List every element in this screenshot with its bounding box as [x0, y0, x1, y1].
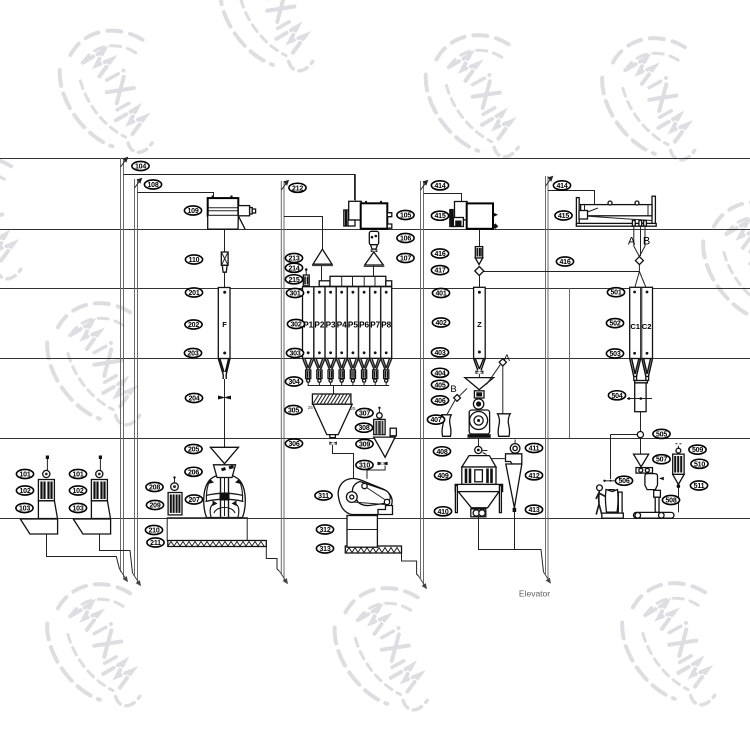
svg-text:301: 301	[289, 291, 300, 298]
svg-text:407: 407	[430, 417, 441, 424]
svg-text:501: 501	[610, 290, 621, 297]
svg-text:312: 312	[319, 527, 330, 534]
svg-text:108: 108	[147, 182, 158, 189]
svg-text:104: 104	[135, 164, 146, 171]
svg-text:209: 209	[149, 503, 160, 510]
svg-text:P4: P4	[337, 321, 347, 330]
svg-text:414: 414	[556, 183, 567, 190]
svg-text:107: 107	[400, 256, 411, 263]
svg-text:414: 414	[434, 183, 445, 190]
svg-text:P2: P2	[314, 321, 324, 330]
svg-text:302: 302	[290, 322, 301, 329]
svg-text:P1: P1	[303, 321, 313, 330]
svg-text:416: 416	[434, 251, 445, 258]
svg-text:103: 103	[19, 506, 30, 513]
svg-text:102: 102	[72, 488, 83, 495]
svg-text:213: 213	[288, 256, 299, 263]
svg-text:511: 511	[694, 483, 705, 490]
svg-text:307: 307	[359, 411, 370, 418]
svg-text:P5: P5	[348, 321, 358, 330]
svg-text:103: 103	[72, 506, 83, 513]
svg-text:406: 406	[434, 398, 445, 405]
svg-text:502: 502	[609, 321, 620, 328]
svg-text:214: 214	[288, 265, 299, 272]
svg-text:309: 309	[359, 442, 370, 449]
svg-text:304: 304	[288, 379, 299, 386]
svg-text:505: 505	[656, 431, 667, 438]
svg-text:210: 210	[148, 528, 159, 535]
svg-text:Elevator: Elevator	[519, 589, 550, 599]
svg-text:313: 313	[319, 546, 330, 553]
svg-text:C2: C2	[642, 322, 652, 331]
svg-text:101: 101	[19, 472, 30, 479]
svg-text:205: 205	[188, 447, 199, 454]
svg-text:409: 409	[437, 473, 448, 480]
svg-text:A: A	[504, 353, 511, 364]
svg-text:105: 105	[400, 213, 411, 220]
svg-text:P6: P6	[359, 321, 369, 330]
svg-text:408: 408	[436, 449, 447, 456]
svg-text:508: 508	[665, 498, 676, 505]
svg-text:P8: P8	[381, 321, 391, 330]
svg-text:401: 401	[435, 291, 446, 298]
svg-text:311: 311	[318, 493, 329, 500]
svg-text:208: 208	[149, 485, 160, 492]
svg-text:201: 201	[188, 290, 199, 297]
svg-text:25: 25	[308, 405, 314, 410]
svg-text:402: 402	[435, 320, 446, 327]
svg-text:A: A	[628, 236, 636, 248]
svg-text:413: 413	[528, 507, 539, 514]
svg-text:212: 212	[292, 185, 303, 192]
svg-text:211: 211	[150, 540, 161, 547]
svg-text:106: 106	[400, 236, 411, 243]
svg-text:415: 415	[558, 213, 569, 220]
svg-text:207: 207	[188, 497, 199, 504]
svg-text:506: 506	[618, 478, 629, 485]
svg-text:410: 410	[437, 509, 448, 516]
svg-text:109: 109	[187, 208, 198, 215]
svg-text:405: 405	[434, 382, 445, 389]
svg-text:308: 308	[358, 425, 369, 432]
svg-text:510: 510	[694, 461, 705, 468]
svg-text:206: 206	[188, 469, 199, 476]
svg-text:204: 204	[188, 396, 199, 403]
svg-text:305: 305	[288, 408, 299, 415]
svg-text:110: 110	[189, 257, 200, 264]
svg-text:416: 416	[559, 259, 570, 266]
svg-text:202: 202	[188, 322, 199, 329]
svg-text:303: 303	[289, 351, 300, 358]
svg-text:F: F	[222, 320, 227, 329]
svg-text:101: 101	[72, 472, 83, 479]
svg-text:P3: P3	[326, 321, 336, 330]
svg-text:417: 417	[434, 268, 445, 275]
svg-text:310: 310	[359, 463, 370, 470]
svg-text:P7: P7	[370, 321, 380, 330]
svg-text:404: 404	[434, 370, 445, 377]
svg-text:403: 403	[434, 350, 445, 357]
svg-text:102: 102	[19, 488, 30, 495]
svg-text:B: B	[643, 236, 650, 248]
svg-text:412: 412	[528, 473, 539, 480]
svg-text:306: 306	[288, 441, 299, 448]
svg-text:509: 509	[692, 447, 703, 454]
svg-text:25: 25	[351, 406, 357, 411]
svg-text:504: 504	[611, 393, 622, 400]
svg-text:215: 215	[288, 277, 299, 284]
svg-text:C1: C1	[630, 322, 640, 331]
svg-text:415: 415	[434, 213, 445, 220]
svg-text:503: 503	[609, 351, 620, 358]
svg-text:507: 507	[656, 457, 667, 464]
svg-text:Z: Z	[477, 320, 482, 329]
svg-text:411: 411	[529, 446, 540, 453]
svg-text:B: B	[450, 384, 456, 395]
svg-text:203: 203	[187, 351, 198, 358]
